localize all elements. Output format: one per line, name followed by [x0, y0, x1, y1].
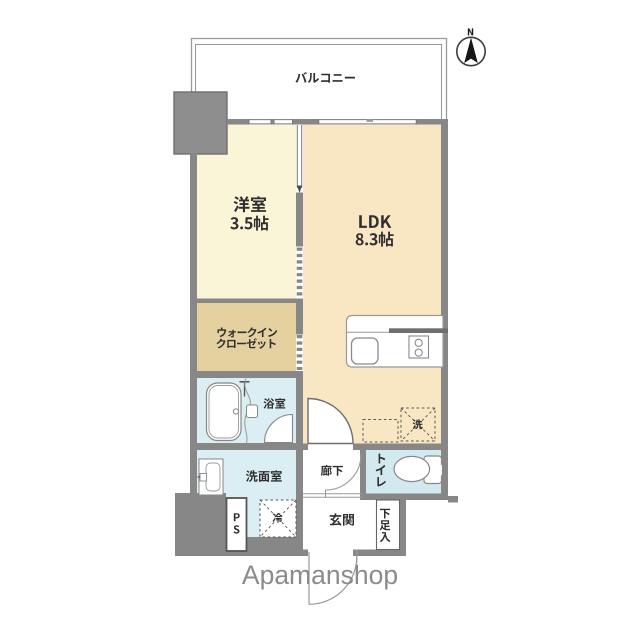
svg-text:Apamanshop: Apamanshop	[242, 560, 398, 590]
